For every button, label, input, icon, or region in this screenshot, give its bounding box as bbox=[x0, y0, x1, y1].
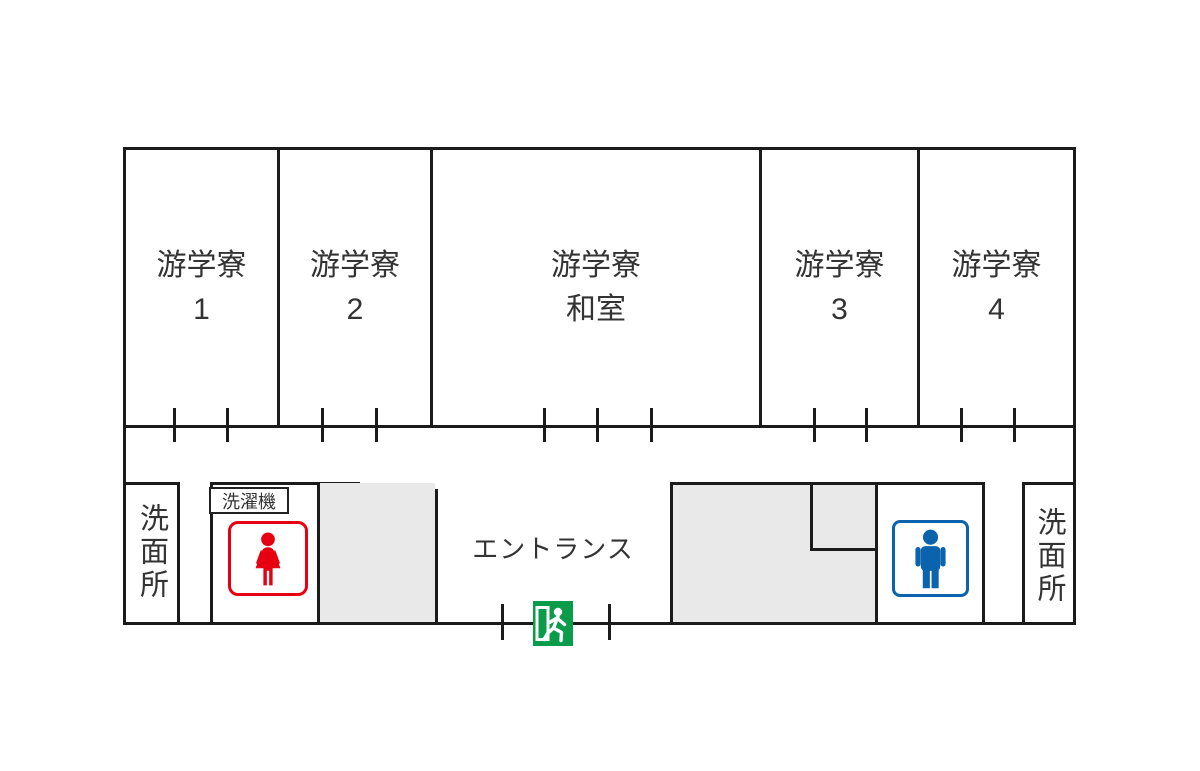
shaded-area-right-left-wall bbox=[670, 482, 673, 622]
guest-room-band: 游学寮 1 游学寮 2 游学寮 和室 游学寮 3 游学寮 4 bbox=[123, 147, 1076, 428]
door-tick bbox=[596, 408, 599, 442]
laundry-machine-label-box: 洗濯機 bbox=[209, 487, 289, 514]
room-label: 游学寮 bbox=[551, 244, 641, 288]
washroom-right-label: 洗面所 bbox=[1025, 494, 1073, 618]
door-tick bbox=[501, 604, 504, 640]
floor-plan: 游学寮 1 游学寮 2 游学寮 和室 游学寮 3 游学寮 4 洗面所 bbox=[0, 0, 1200, 771]
door-tick bbox=[375, 408, 378, 442]
mens-restroom-icon bbox=[892, 520, 969, 597]
washroom-left-top-wall bbox=[123, 482, 180, 485]
door-tick bbox=[813, 408, 816, 442]
washroom-right-top-wall bbox=[1022, 482, 1076, 485]
outer-wall-bottom bbox=[123, 622, 1076, 625]
room-yugakuryo-4: 游学寮 4 bbox=[920, 150, 1073, 425]
laundry-machine-label: 洗濯機 bbox=[222, 488, 276, 514]
door-tick bbox=[543, 408, 546, 442]
room-sublabel: 和室 bbox=[566, 288, 626, 332]
door-tick bbox=[608, 604, 611, 640]
mens-room-right-wall bbox=[982, 482, 985, 622]
shaded-area-right bbox=[670, 482, 875, 622]
door-tick bbox=[960, 408, 963, 442]
room-number: 3 bbox=[831, 288, 848, 332]
right-block-top-wall bbox=[670, 482, 985, 485]
room-label: 游学寮 bbox=[795, 244, 885, 288]
entrance-label: エントランス bbox=[438, 529, 668, 566]
mens-room-left-wall bbox=[875, 482, 878, 622]
washroom-left-label: 洗面所 bbox=[126, 486, 177, 618]
door-tick bbox=[865, 408, 868, 442]
door-tick bbox=[173, 408, 176, 442]
shaded-area-left bbox=[320, 483, 435, 622]
outer-wall-right bbox=[1073, 428, 1076, 625]
room-label: 游学寮 bbox=[310, 244, 400, 288]
woman-pictogram bbox=[237, 530, 299, 588]
room-number: 4 bbox=[988, 288, 1005, 332]
washroom-left-right-wall bbox=[177, 482, 180, 622]
door-tick bbox=[321, 408, 324, 442]
room-label: 游学寮 bbox=[952, 244, 1042, 288]
door-tick bbox=[650, 408, 653, 442]
notch-bottom-wall bbox=[810, 548, 878, 551]
man-pictogram bbox=[899, 527, 962, 590]
room-label: 游学寮 bbox=[157, 244, 247, 288]
notch-left-wall bbox=[810, 482, 813, 551]
door-tick bbox=[226, 408, 229, 442]
room-yugakuryo-1: 游学寮 1 bbox=[126, 150, 277, 425]
womens-restroom-icon bbox=[228, 521, 308, 596]
room-yugakuryo-3: 游学寮 3 bbox=[762, 150, 917, 425]
room-yugakuryo-2: 游学寮 2 bbox=[280, 150, 430, 425]
door-tick bbox=[1013, 408, 1016, 442]
room-number: 2 bbox=[347, 288, 364, 332]
running-man-pictogram bbox=[533, 601, 573, 646]
room-number: 1 bbox=[193, 288, 210, 332]
emergency-exit-icon bbox=[533, 601, 573, 646]
room-yugakuryo-washitsu: 游学寮 和室 bbox=[433, 150, 759, 425]
